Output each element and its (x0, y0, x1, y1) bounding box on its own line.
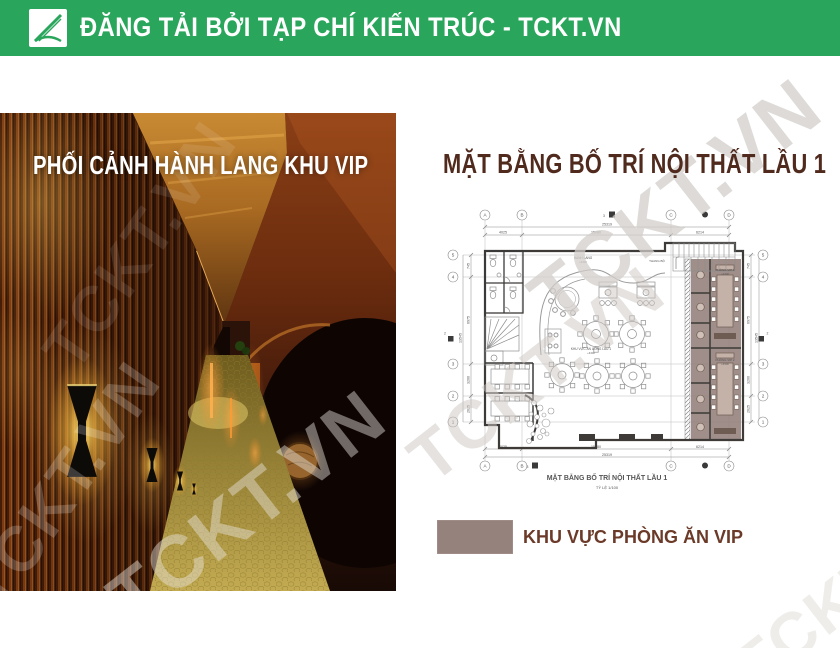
left-dining-rooms (485, 363, 533, 441)
svg-text:5: 5 (762, 253, 765, 258)
wall-sconce-large (47, 357, 117, 506)
svg-text:B: B (520, 213, 523, 218)
svg-text:3: 3 (762, 362, 765, 367)
svg-text:HÀNH LANG: HÀNH LANG (574, 256, 593, 260)
svg-text:3: 3 (452, 362, 455, 367)
legend-label: KHU VỰC PHÒNG ĂN VIP (523, 527, 743, 548)
svg-text:3: 3 (603, 214, 605, 218)
svg-text:PHÒNG VIP 1: PHÒNG VIP 1 (715, 267, 734, 272)
svg-text:4025: 4025 (499, 231, 507, 235)
svg-text:13545: 13545 (459, 333, 463, 343)
plan-caption: MẶT BẰNG BỐ TRÍ NỘI THẤT LẦU 1 (547, 472, 668, 482)
svg-text:13545: 13545 (755, 333, 759, 343)
svg-text:15080: 15080 (591, 231, 601, 235)
round-tables (545, 316, 650, 393)
svg-text:745: 745 (747, 263, 751, 269)
svg-text:KHU VỰC ĂN UỐNG LẦU 1: KHU VỰC ĂN UỐNG LẦU 1 (571, 346, 611, 351)
svg-text:THANG BỘ: THANG BỘ (649, 258, 665, 263)
svg-text:+3.600: +3.600 (579, 261, 587, 264)
svg-text:1: 1 (762, 420, 765, 425)
svg-text:6214: 6214 (696, 445, 704, 449)
legend: KHU VỰC PHÒNG ĂN VIP (437, 520, 743, 554)
vip-corridor-photo: PHỐI CẢNH HÀNH LANG KHU VIP TCKT.VN TCKT… (0, 113, 396, 591)
svg-text:B: B (520, 464, 523, 469)
svg-text:+3.600: +3.600 (587, 352, 595, 355)
svg-text:6975: 6975 (467, 316, 471, 324)
wall-sconce-tiny (190, 480, 198, 498)
buffet-counter (540, 270, 665, 355)
svg-text:2: 2 (444, 332, 446, 336)
svg-text:25319: 25319 (602, 223, 612, 227)
svg-text:3: 3 (527, 465, 529, 469)
svg-text:5: 5 (452, 253, 455, 258)
header-title-text: ĐĂNG TẢI BỞI TẠP CHÍ KIẾN TRÚC - TCKT.VN (80, 11, 622, 45)
svg-text:2625: 2625 (747, 405, 751, 413)
svg-text:2: 2 (452, 394, 455, 399)
svg-text:745: 745 (467, 263, 471, 269)
tckt-logo-icon (28, 8, 68, 48)
svg-text:+3.600: +3.600 (721, 363, 729, 366)
svg-text:2: 2 (762, 394, 765, 399)
svg-text:4: 4 (762, 275, 765, 280)
floor-plan-drawing: 4025 15080 6214 25319 4025 15080 6214 25… (433, 203, 823, 503)
svg-text:25319: 25319 (602, 453, 612, 457)
svg-text:+3.600: +3.600 (721, 273, 729, 276)
service-corridor-wall (685, 259, 690, 440)
magazine-page: ĐĂNG TẢI BỞI TẠP CHÍ KIẾN TRÚC - TCKT.VN (0, 0, 840, 648)
svg-text:6214: 6214 (696, 231, 704, 235)
svg-text:2625: 2625 (467, 405, 471, 413)
header-bar: ĐĂNG TẢI BỞI TẠP CHÍ KIẾN TRÚC - TCKT.VN (0, 0, 840, 56)
wall-sconce-small (173, 466, 188, 497)
svg-text:PHÒNG VIP 2: PHÒNG VIP 2 (715, 357, 734, 362)
plan-scale-note: TỶ LỆ 1/100 (596, 485, 619, 490)
upper-tables (599, 282, 655, 305)
header-title: ĐĂNG TẢI BỞI TẠP CHÍ KIẾN TRÚC - TCKT.VN (80, 0, 696, 56)
svg-text:6975: 6975 (747, 316, 751, 324)
corridor-render-graphic (0, 113, 396, 591)
plan-title: MẶT BẰNG BỐ TRÍ NỘI THẤT LẦU 1 (443, 146, 840, 181)
wall-sconce-medium (139, 438, 165, 493)
photo-caption: PHỐI CẢNH HÀNH LANG KHU VIP (33, 149, 396, 182)
svg-text:3200: 3200 (747, 376, 751, 384)
svg-text:3200: 3200 (467, 376, 471, 384)
svg-text:2: 2 (767, 332, 769, 336)
svg-text:1: 1 (452, 420, 455, 425)
svg-text:4: 4 (452, 275, 455, 280)
legend-swatch (437, 520, 513, 554)
service-stair (485, 317, 519, 365)
